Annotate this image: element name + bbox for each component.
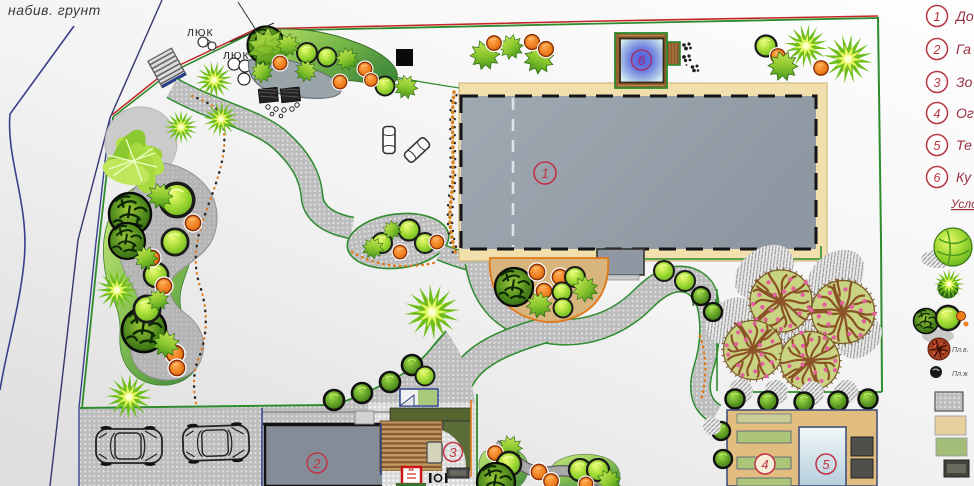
svg-text:4: 4 [934, 107, 941, 121]
svg-text:4: 4 [761, 457, 768, 472]
svg-text:1: 1 [541, 165, 549, 181]
svg-text:Пл.в.: Пл.в. [952, 347, 969, 354]
svg-text:До: До [954, 8, 974, 24]
svg-text:Те: Те [956, 137, 972, 153]
svg-text:5: 5 [934, 139, 941, 153]
svg-text:Ог: Ог [956, 105, 974, 121]
svg-text:набив. грунт: набив. грунт [8, 2, 101, 18]
svg-text:3: 3 [934, 76, 941, 90]
svg-text:1: 1 [934, 10, 941, 24]
svg-text:3: 3 [449, 445, 457, 460]
svg-text:5: 5 [822, 457, 830, 472]
svg-text:6: 6 [934, 171, 941, 185]
svg-text:Пл.ж: Пл.ж [952, 371, 969, 378]
svg-text:Зо: Зо [956, 74, 973, 90]
svg-text:Га: Га [956, 41, 971, 57]
svg-text:Усло: Усло [950, 197, 974, 211]
svg-text:2: 2 [312, 456, 321, 471]
svg-text:2: 2 [933, 43, 941, 57]
svg-text:Ку: Ку [956, 169, 972, 185]
svg-text:6: 6 [638, 53, 646, 68]
